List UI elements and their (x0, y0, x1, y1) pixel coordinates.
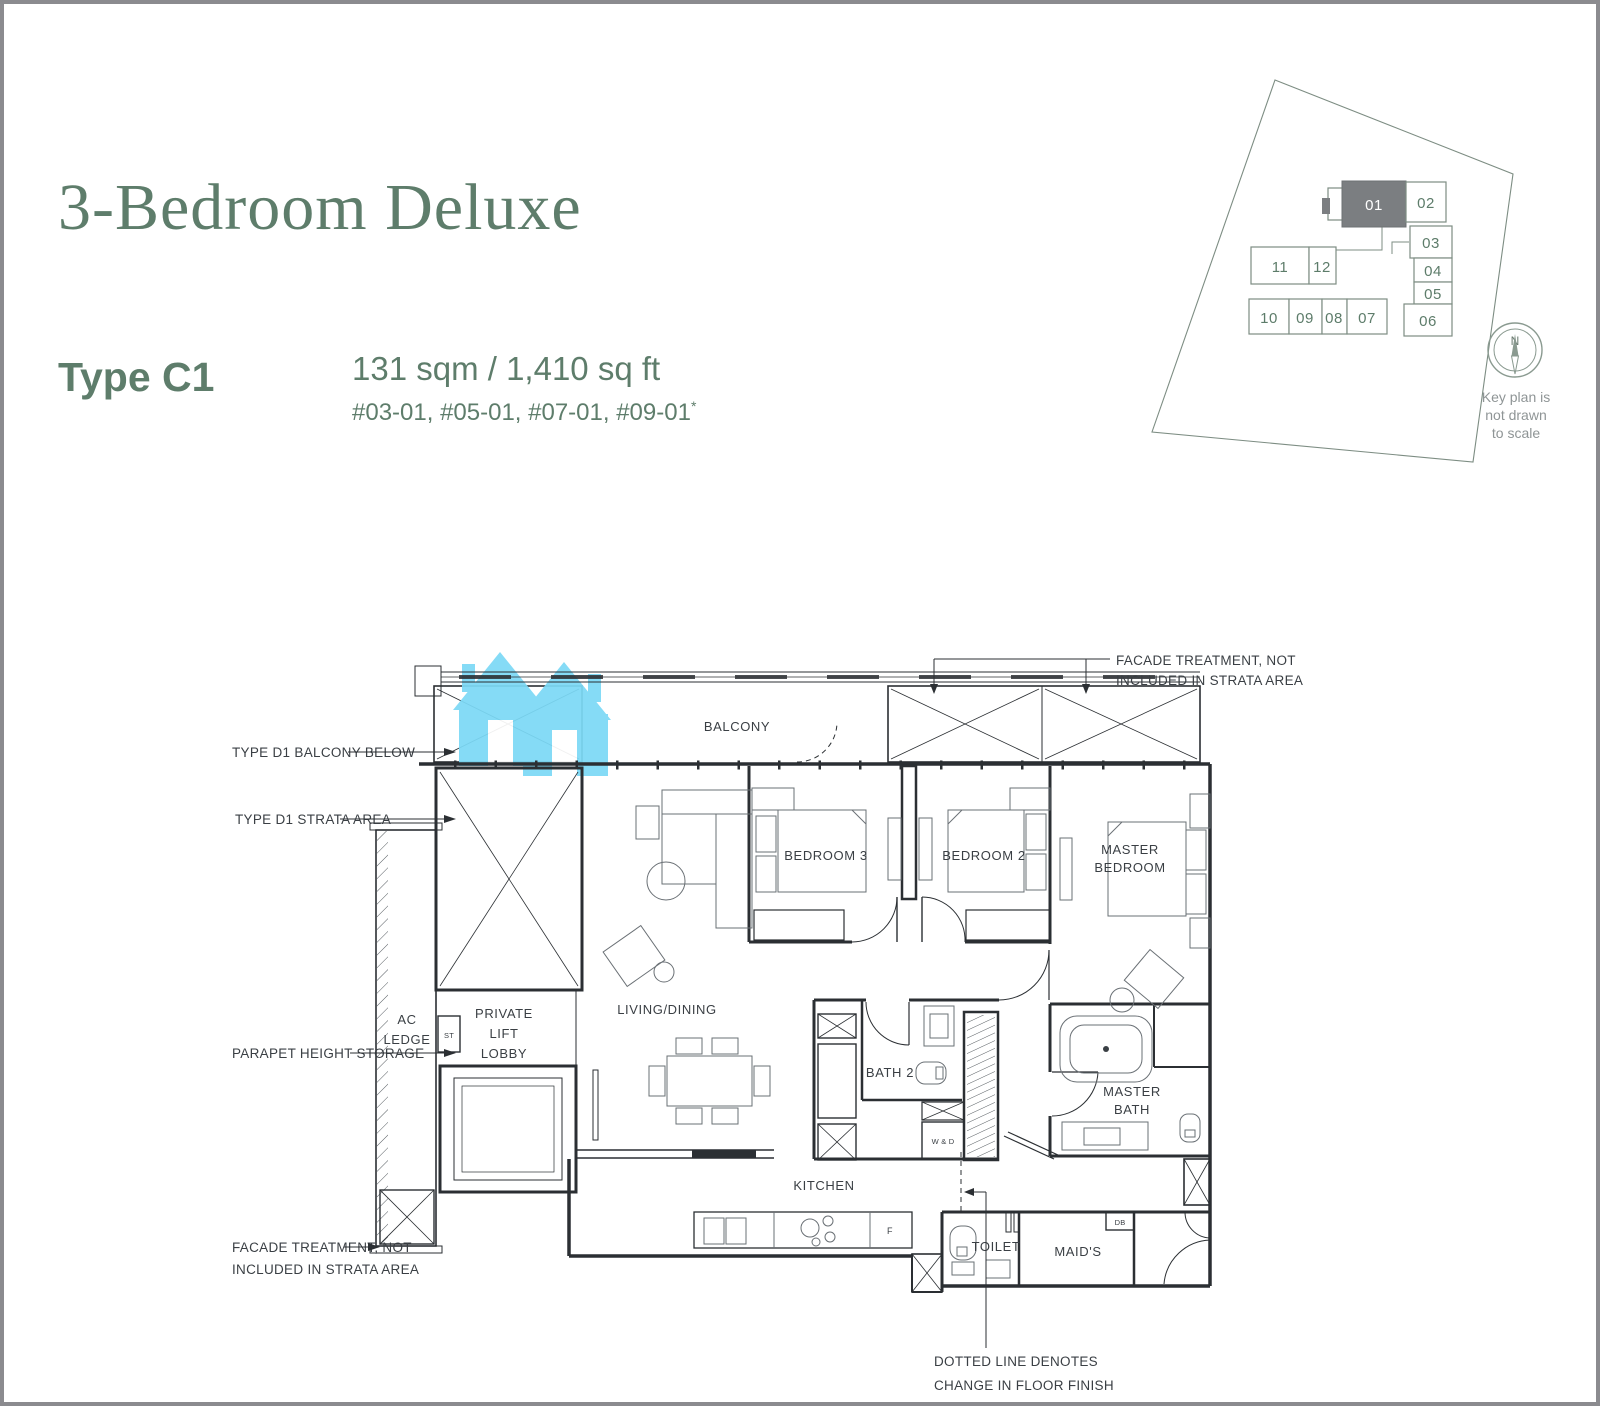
floorplan-page: 3-Bedroom Deluxe Type C1 131 sqm / 1,410… (0, 0, 1600, 1406)
svg-text:Key plan is: Key plan is (1482, 389, 1550, 405)
svg-text:not drawn: not drawn (1485, 407, 1546, 423)
annotation-dotted-line-note: DOTTED LINE DENOTES CHANGE IN FLOOR FINI… (934, 1188, 1114, 1393)
svg-text:01: 01 (1365, 197, 1383, 214)
svg-text:05: 05 (1424, 286, 1442, 303)
svg-text:12: 12 (1313, 259, 1331, 276)
svg-text:09: 09 (1296, 310, 1314, 327)
svg-text:FACADE TREATMENT, NOT: FACADE TREATMENT, NOT (1116, 653, 1296, 668)
keyplan-unit-01-highlighted: 01 (1322, 181, 1406, 227)
keyplan-unit-12: 12 (1309, 247, 1336, 284)
svg-text:11: 11 (1272, 259, 1289, 276)
label-bedroom-3: BEDROOM 3 (784, 848, 867, 863)
keyplan-unit-10: 10 (1249, 299, 1289, 334)
label-kitchen: KITCHEN (793, 1178, 854, 1193)
keyplan-unit-03: 03 (1410, 226, 1452, 258)
compass-icon: N (1488, 323, 1542, 377)
label-db: DB (1115, 1218, 1126, 1227)
keyplan-unit-04: 04 (1414, 258, 1452, 282)
kitchen-shaft-box (912, 1254, 942, 1292)
svg-text:06: 06 (1419, 313, 1437, 330)
svg-text:08: 08 (1325, 310, 1343, 327)
plan-canvas: 01 02 03 04 05 06 (4, 4, 1600, 1406)
label-bedroom-2: BEDROOM 2 (942, 848, 1025, 863)
right-shaft-box (1184, 1159, 1210, 1205)
svg-text:10: 10 (1260, 310, 1278, 327)
label-master-bath-2: BATH (1114, 1102, 1150, 1117)
key-plan: 01 02 03 04 05 06 (1152, 80, 1513, 462)
label-maids: MAID'S (1054, 1244, 1101, 1259)
label-fridge: F (887, 1226, 893, 1236)
label-st: ST (444, 1031, 454, 1040)
label-lobby-2: LIFT (489, 1026, 518, 1041)
svg-text:04: 04 (1424, 263, 1442, 280)
label-balcony: BALCONY (704, 719, 770, 734)
svg-text:INCLUDED IN STRATA AREA: INCLUDED IN STRATA AREA (232, 1262, 419, 1277)
keyplan-unit-06: 06 (1404, 304, 1452, 336)
keyplan-unit-09: 09 (1289, 299, 1322, 334)
svg-text:07: 07 (1358, 310, 1376, 327)
keyplan-unit-07: 07 (1347, 299, 1387, 334)
label-ac-ledge-2: LEDGE (383, 1032, 430, 1047)
svg-text:DOTTED LINE DENOTES: DOTTED LINE DENOTES (934, 1354, 1098, 1369)
label-living-dining: LIVING/DINING (617, 1002, 717, 1017)
keyplan-unit-05: 05 (1414, 282, 1452, 304)
svg-text:to scale: to scale (1492, 425, 1540, 441)
svg-text:CHANGE IN FLOOR FINISH: CHANGE IN FLOOR FINISH (934, 1378, 1114, 1393)
svg-text:03: 03 (1422, 235, 1440, 252)
label-bath-2: BATH 2 (866, 1065, 914, 1080)
keyplan-unit-11: 11 (1251, 247, 1309, 284)
label-master-bedroom-1: MASTER (1101, 842, 1159, 857)
watermark-houses-icon (453, 652, 611, 776)
label-master-bath-1: MASTER (1103, 1084, 1161, 1099)
label-ac-ledge-1: AC (397, 1012, 416, 1027)
label-lobby-1: PRIVATE (475, 1006, 533, 1021)
annotation-facade-top-right: FACADE TREATMENT, NOT INCLUDED IN STRATA… (930, 653, 1303, 694)
svg-text:INCLUDED IN STRATA AREA: INCLUDED IN STRATA AREA (1116, 673, 1303, 688)
label-master-bedroom-2: BEDROOM (1094, 860, 1165, 875)
keyplan-unit-08: 08 (1322, 299, 1347, 334)
label-lobby-3: LOBBY (481, 1046, 527, 1061)
ac-ledge-shaft-box (380, 1190, 434, 1244)
svg-text:FACADE TREATMENT, NOT: FACADE TREATMENT, NOT (232, 1240, 412, 1255)
keyplan-unit-02: 02 (1406, 182, 1446, 222)
svg-text:02: 02 (1417, 195, 1435, 212)
label-wd: W & D (932, 1137, 955, 1146)
keyplan-note: Key plan is not drawn to scale (1482, 389, 1550, 441)
annotation-facade-bottom-left: FACADE TREATMENT, NOT INCLUDED IN STRATA… (232, 1240, 419, 1277)
facade-treatment-band (415, 666, 1200, 696)
label-toilet: TOILET (972, 1239, 1021, 1254)
